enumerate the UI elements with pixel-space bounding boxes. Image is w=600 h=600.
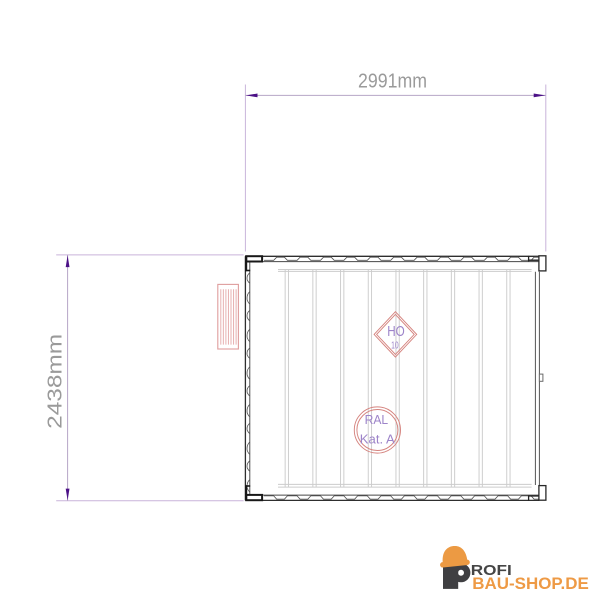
svg-text:RAL: RAL [365,412,389,427]
svg-text:2991mm: 2991mm [358,69,427,92]
svg-text:Kat. A: Kat. A [360,431,395,446]
svg-text:BAU-SHOP.DE: BAU-SHOP.DE [472,574,589,593]
svg-text:2438mm: 2438mm [43,334,66,429]
svg-text:HO: HO [387,323,405,340]
svg-text:10: 10 [391,340,399,351]
